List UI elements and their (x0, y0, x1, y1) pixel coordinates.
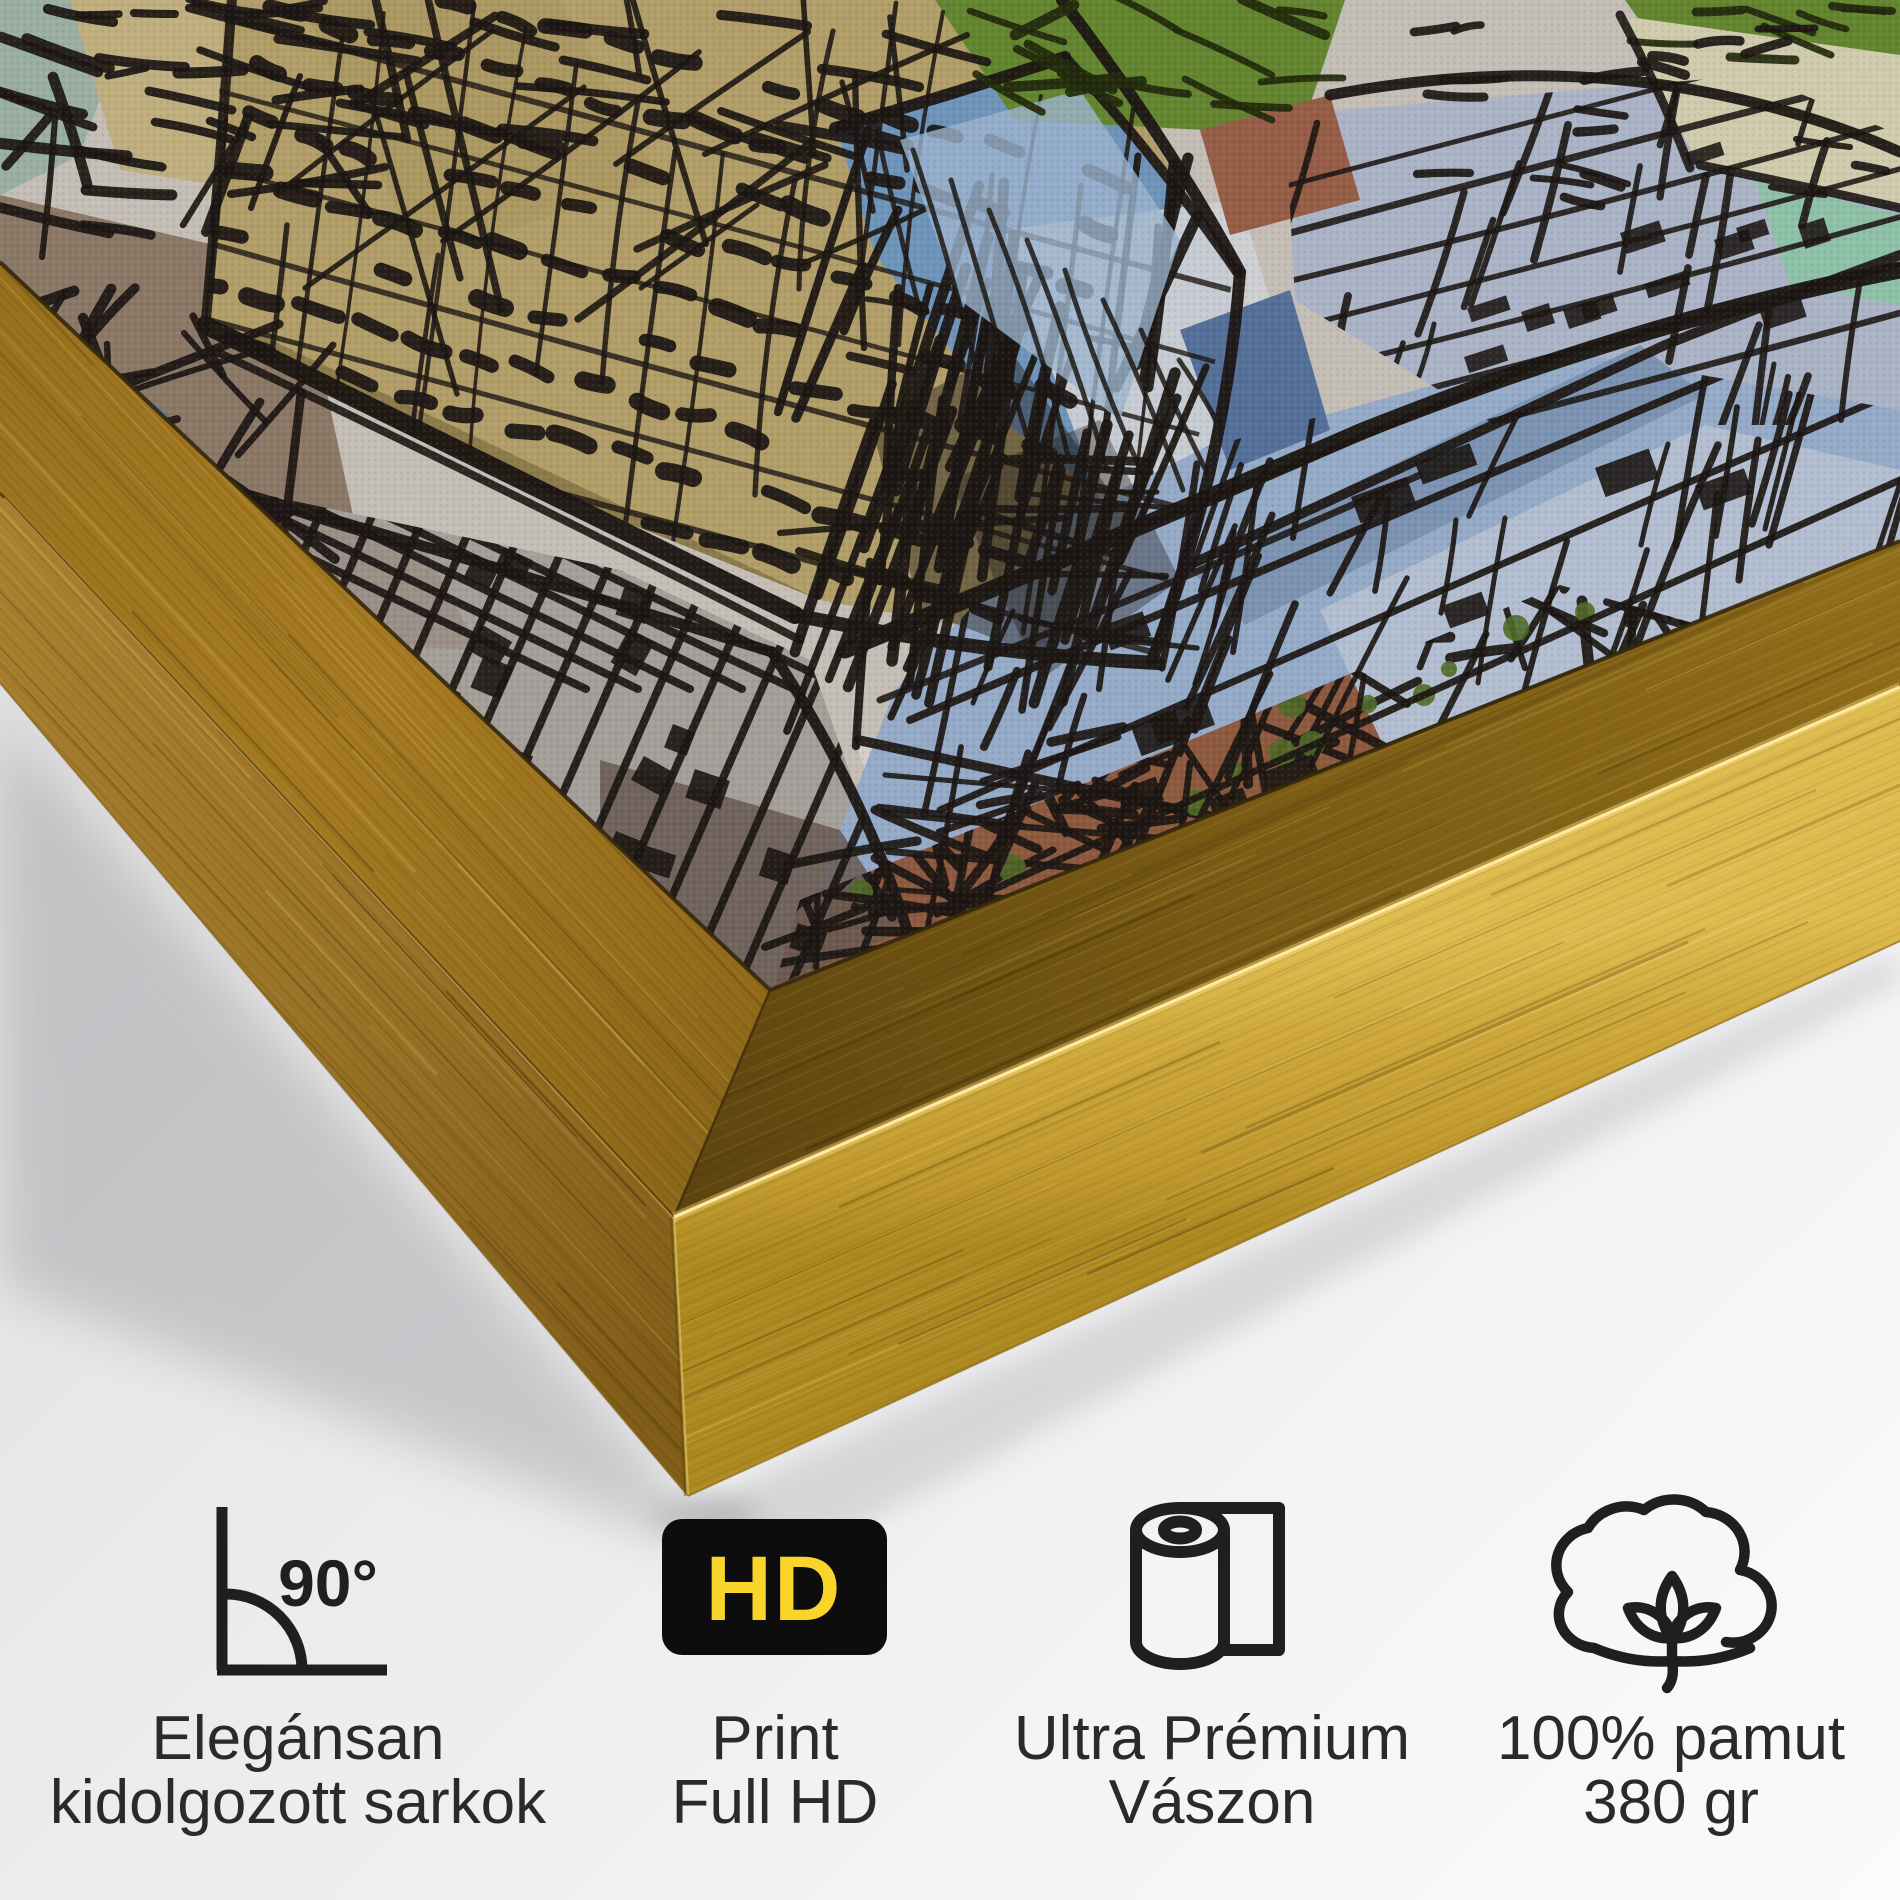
svg-text:Vászon: Vászon (1109, 1768, 1316, 1837)
svg-text:Full HD: Full HD (672, 1768, 879, 1837)
svg-text:kidolgozott sarkok: kidolgozott sarkok (50, 1768, 547, 1837)
svg-text:380 gr: 380 gr (1583, 1768, 1759, 1837)
svg-text:HD: HD (706, 1538, 843, 1640)
svg-text:Ultra Prémium: Ultra Prémium (1014, 1704, 1410, 1773)
svg-text:100% pamut: 100% pamut (1497, 1704, 1845, 1773)
svg-text:Elegánsan: Elegánsan (151, 1704, 444, 1773)
svg-text:90°: 90° (278, 1546, 378, 1620)
svg-text:Print: Print (711, 1704, 838, 1773)
